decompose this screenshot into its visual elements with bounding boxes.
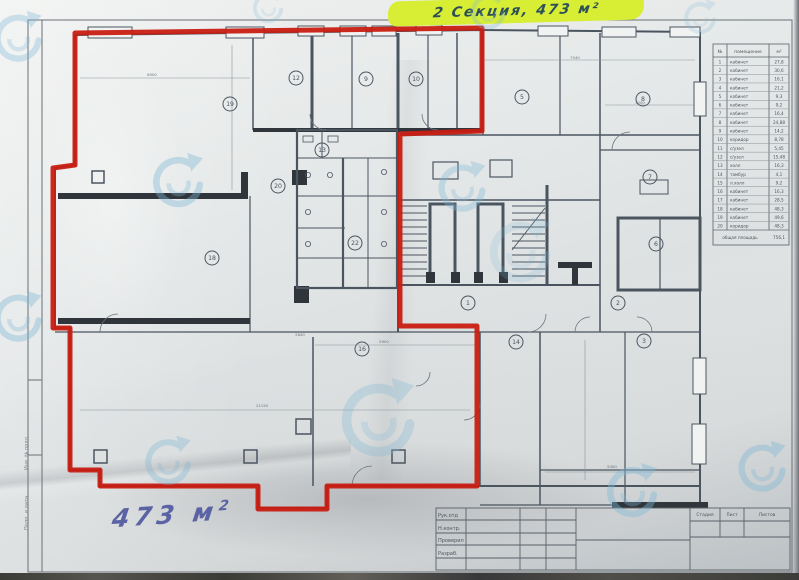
floor-plan-drawing: 60007540320021150590054002640 1912910582… bbox=[0, 0, 799, 580]
svg-text:1: 1 bbox=[719, 59, 722, 64]
svg-text:кабинет: кабинет bbox=[730, 111, 749, 116]
schedule-rows: 1кабинет27,82кабинет30,63кабинет16,14каб… bbox=[713, 59, 789, 230]
title-block-stage: Стадия bbox=[696, 512, 714, 518]
svg-text:5400: 5400 bbox=[607, 464, 617, 469]
svg-text:5,45: 5,45 bbox=[774, 146, 784, 151]
svg-text:13: 13 bbox=[318, 147, 326, 154]
svg-text:16,3: 16,3 bbox=[774, 163, 784, 168]
svg-text:2: 2 bbox=[719, 68, 722, 73]
svg-text:16,4: 16,4 bbox=[774, 111, 784, 116]
svg-text:5900: 5900 bbox=[379, 339, 389, 344]
svg-text:2640: 2640 bbox=[295, 332, 305, 337]
svg-text:21150: 21150 bbox=[256, 403, 269, 408]
margin-label: Подп. и дата bbox=[24, 496, 30, 530]
svg-text:5: 5 bbox=[719, 94, 722, 99]
svg-text:9,2: 9,2 bbox=[776, 103, 783, 108]
svg-text:12: 12 bbox=[292, 75, 300, 82]
svg-text:кабинет: кабинет bbox=[730, 94, 749, 99]
svg-text:кабинет: кабинет bbox=[730, 59, 749, 64]
svg-text:10: 10 bbox=[717, 137, 723, 142]
svg-text:8: 8 bbox=[641, 96, 645, 103]
svg-text:кабинет: кабинет bbox=[730, 68, 749, 73]
building-walls bbox=[55, 30, 700, 508]
svg-text:7: 7 bbox=[719, 111, 722, 116]
title-block-row-label: Разраб. bbox=[438, 551, 458, 557]
svg-text:холл: холл bbox=[730, 163, 741, 168]
margin-label: Инв. № подл. bbox=[24, 436, 30, 471]
title-block-row-label: Н.контр. bbox=[438, 526, 461, 532]
svg-text:9,3: 9,3 bbox=[776, 94, 783, 99]
stair-treads bbox=[399, 206, 545, 276]
svg-text:кабинет: кабинет bbox=[730, 206, 749, 211]
svg-text:9: 9 bbox=[719, 129, 722, 134]
svg-text:28,5: 28,5 bbox=[774, 198, 784, 203]
sanitary-block bbox=[297, 130, 397, 288]
svg-text:49,6: 49,6 bbox=[774, 215, 784, 220]
schedule-header-area: м² bbox=[776, 50, 781, 55]
svg-text:48,3: 48,3 bbox=[774, 206, 784, 211]
red-marker-outline bbox=[53, 28, 482, 509]
svg-text:16,3: 16,3 bbox=[774, 189, 784, 194]
title-block-row-label: Проверил bbox=[438, 538, 464, 544]
svg-text:12: 12 bbox=[717, 154, 723, 159]
svg-text:кабинет: кабинет bbox=[730, 189, 749, 194]
svg-text:19: 19 bbox=[717, 215, 723, 220]
room-numbers: 19129105820131822761216143 bbox=[205, 71, 663, 356]
svg-text:30,6: 30,6 bbox=[774, 68, 784, 73]
svg-text:кабинет: кабинет bbox=[730, 129, 749, 134]
svg-text:4,1: 4,1 bbox=[776, 172, 783, 177]
svg-text:20: 20 bbox=[274, 183, 282, 190]
svg-text:22: 22 bbox=[351, 240, 359, 247]
svg-text:18: 18 bbox=[208, 255, 216, 262]
svg-text:14,2: 14,2 bbox=[774, 129, 784, 134]
svg-text:18: 18 bbox=[717, 206, 723, 211]
svg-text:20: 20 bbox=[717, 224, 723, 229]
svg-text:8,78: 8,78 bbox=[774, 137, 784, 142]
dimension-lines bbox=[80, 45, 695, 480]
svg-text:21,2: 21,2 bbox=[774, 85, 784, 90]
title-block-sheets: Листов bbox=[759, 512, 776, 518]
svg-text:48,3: 48,3 bbox=[774, 224, 784, 229]
svg-text:10: 10 bbox=[412, 76, 420, 83]
svg-text:15: 15 bbox=[717, 180, 723, 185]
svg-text:15,48: 15,48 bbox=[773, 154, 785, 159]
schedule-total-label: общая площадь bbox=[722, 235, 758, 240]
svg-text:6000: 6000 bbox=[147, 72, 157, 77]
svg-text:19: 19 bbox=[226, 101, 234, 108]
svg-text:4: 4 bbox=[719, 85, 722, 90]
svg-text:8: 8 bbox=[719, 120, 722, 125]
svg-text:27,8: 27,8 bbox=[774, 59, 784, 64]
svg-text:14: 14 bbox=[717, 172, 723, 177]
svg-text:7540: 7540 bbox=[570, 55, 580, 60]
svg-text:1: 1 bbox=[466, 300, 470, 307]
svg-text:3: 3 bbox=[642, 338, 646, 345]
svg-text:16: 16 bbox=[358, 346, 366, 353]
svg-text:6: 6 bbox=[654, 241, 658, 248]
svg-text:16: 16 bbox=[717, 189, 723, 194]
svg-text:с/узел: с/узел bbox=[730, 154, 744, 159]
title-block-row-label: Рук.отд bbox=[438, 513, 459, 519]
svg-text:13: 13 bbox=[717, 163, 723, 168]
lift-shaft-feet bbox=[426, 272, 508, 283]
title-block-top-bar bbox=[612, 502, 708, 508]
svg-text:с/узел: с/узел bbox=[730, 146, 744, 151]
door-swings bbox=[100, 114, 652, 486]
area-note-sup: 2 bbox=[218, 497, 235, 514]
svg-text:коридор: коридор bbox=[730, 137, 749, 142]
sheet-frame bbox=[28, 20, 792, 572]
svg-text:6: 6 bbox=[719, 103, 722, 108]
room-schedule-table: № помещение м² 1кабинет27,82кабинет30,63… bbox=[713, 44, 789, 245]
schedule-total-value: 756,1 bbox=[773, 235, 785, 240]
title-block: Рук.отд Н.контр. Проверил Разраб. Стадия… bbox=[436, 502, 790, 570]
svg-text:кабинет: кабинет bbox=[730, 215, 749, 220]
svg-text:кабинет: кабинет bbox=[730, 77, 749, 82]
svg-text:кабинет: кабинет bbox=[730, 103, 749, 108]
svg-text:кабинет: кабинет bbox=[730, 120, 749, 125]
svg-text:24,88: 24,88 bbox=[773, 120, 785, 125]
svg-text:кабинет: кабинет bbox=[730, 198, 749, 203]
photographed-floor-plan: 60007540320021150590054002640 1912910582… bbox=[0, 0, 799, 580]
svg-text:17: 17 bbox=[717, 198, 723, 203]
svg-text:11: 11 bbox=[717, 146, 723, 151]
svg-text:9,2: 9,2 bbox=[776, 180, 783, 185]
svg-text:7: 7 bbox=[648, 174, 652, 181]
svg-text:л.холл: л.холл bbox=[730, 180, 745, 185]
title-block-sheet: Лист bbox=[726, 512, 738, 518]
svg-text:9: 9 bbox=[364, 76, 368, 83]
svg-text:5: 5 bbox=[520, 94, 524, 101]
section-note-text: 2 Секция, 473 м² bbox=[431, 0, 600, 21]
svg-text:16,1: 16,1 bbox=[774, 77, 784, 82]
svg-text:2: 2 bbox=[616, 300, 620, 307]
heavy-walls bbox=[58, 128, 592, 324]
svg-text:14: 14 bbox=[512, 339, 520, 346]
svg-text:кабинет: кабинет bbox=[730, 85, 749, 90]
stair-core bbox=[399, 204, 545, 283]
schedule-header-name: помещение bbox=[734, 50, 762, 55]
svg-text:тамбур: тамбур bbox=[730, 172, 746, 177]
svg-text:коридор: коридор bbox=[730, 224, 749, 229]
schedule-header-num: № bbox=[718, 49, 723, 55]
svg-text:3: 3 bbox=[719, 77, 722, 82]
